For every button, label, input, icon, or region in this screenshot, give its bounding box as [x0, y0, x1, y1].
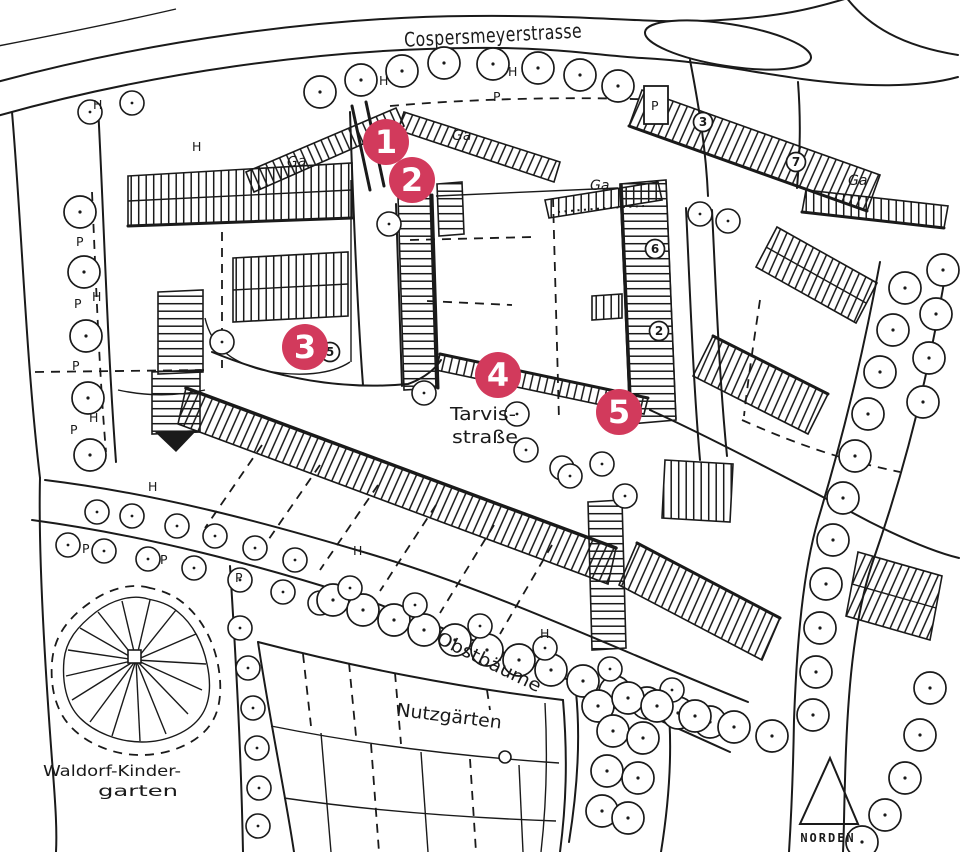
building-number-3: 3	[694, 113, 713, 132]
building-number-text: 3	[699, 115, 707, 129]
marker-1[interactable]: 1	[363, 119, 409, 165]
marker-number: 2	[401, 161, 423, 199]
building-number-6: 6	[646, 240, 665, 259]
marker-number: 1	[375, 123, 397, 161]
marker-2[interactable]: 2	[389, 157, 435, 203]
site-plan-page: P P P P P P P P P H H H H H H H H H Ga G…	[0, 0, 960, 852]
garage-label: Ga	[848, 173, 867, 189]
map-labels: Cospersmeyerstrasse Tarvis- straße Obstb…	[43, 18, 583, 800]
marker-4[interactable]: 4	[475, 352, 521, 398]
main-street-label: Cospersmeyerstrasse	[404, 18, 583, 51]
kindergarten-building	[52, 586, 221, 755]
kindergarten-label-line1: Waldorf-Kinder-	[43, 762, 181, 780]
p-label: P	[72, 358, 80, 373]
building-number-text: 7	[792, 155, 800, 169]
h-label: H	[508, 64, 517, 79]
p-label: P	[82, 541, 90, 556]
p-label: P	[74, 296, 82, 311]
p-label: P	[651, 98, 659, 113]
garage-label: Ga	[452, 128, 471, 144]
north-label: NORDEN	[800, 831, 855, 845]
traffic-island	[642, 11, 815, 79]
marker-number: 5	[608, 393, 630, 431]
north-arrow: NORDEN	[800, 758, 858, 845]
site-plan-map: P P P P P P P P P H H H H H H H H H Ga G…	[0, 0, 960, 852]
p-label: P	[235, 570, 243, 585]
building-number-2: 2	[650, 322, 669, 341]
p-label: P	[493, 89, 501, 104]
north-arrow-triangle	[800, 758, 858, 824]
allotments-label: Nutzgärten	[395, 700, 503, 734]
marker-5[interactable]: 5	[596, 389, 642, 435]
marker-number: 3	[294, 328, 316, 366]
building-number-text: 6	[651, 242, 659, 256]
building-number-7: 7	[787, 153, 806, 172]
h-label: H	[540, 626, 549, 641]
kindergarten-label-line2: garten	[98, 782, 178, 800]
tarvis-street-label-line2: straße	[452, 427, 518, 448]
h-label: H	[148, 479, 157, 494]
marker-3[interactable]: 3	[282, 324, 328, 370]
h-label: H	[89, 410, 98, 425]
tarvis-street-label-line1: Tarvis-	[449, 404, 516, 425]
h-label: H	[353, 543, 362, 558]
h-label: H	[192, 139, 201, 154]
marker-number: 4	[487, 356, 509, 394]
building-number-text: 2	[655, 324, 663, 338]
p-label: P	[70, 422, 78, 437]
p-label: P	[76, 234, 84, 249]
garage-label: Ga	[286, 153, 307, 170]
h-label: H	[93, 97, 102, 112]
p-label: P	[160, 552, 168, 567]
h-label: H	[379, 73, 388, 88]
garage-label: Ga	[590, 178, 609, 194]
h-label: H	[92, 289, 101, 304]
